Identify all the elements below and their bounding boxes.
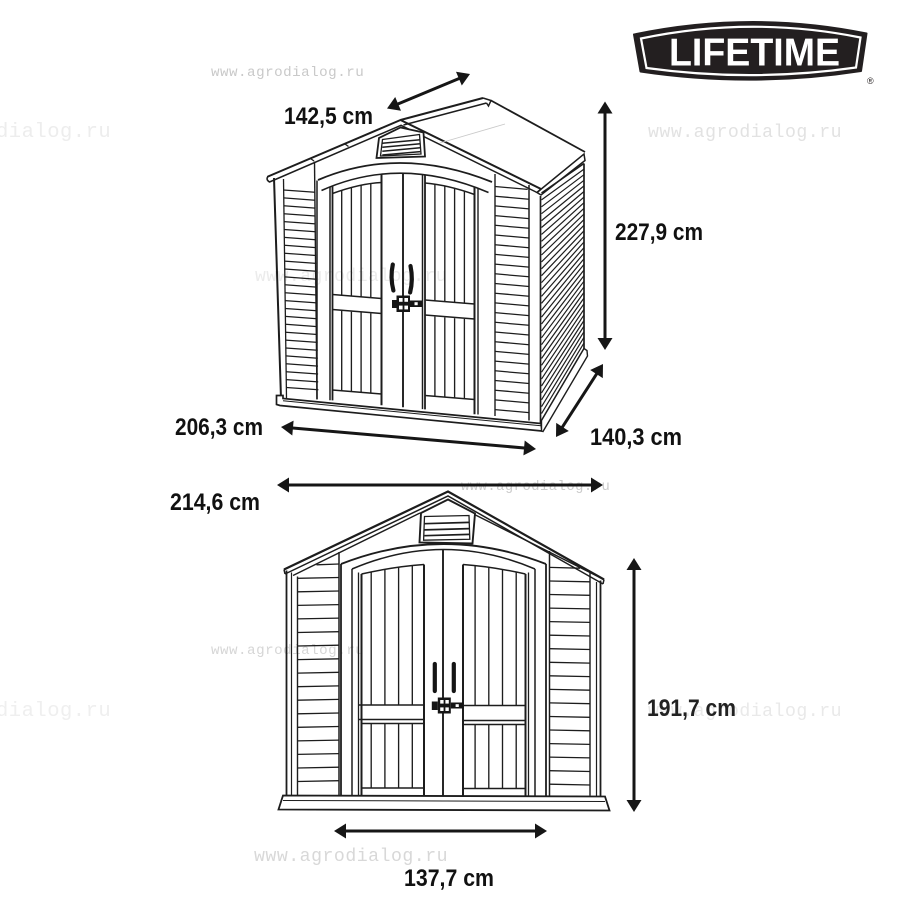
svg-text:142,5 cm: 142,5 cm: [284, 103, 373, 130]
svg-text:www.agrodialog.ru: www.agrodialog.ru: [461, 479, 610, 495]
svg-text:LIFETIME: LIFETIME: [669, 32, 840, 75]
svg-text:227,9 cm: 227,9 cm: [615, 219, 703, 246]
svg-text:191,7 cm: 191,7 cm: [647, 695, 736, 722]
svg-text:®: ®: [867, 76, 874, 86]
svg-text:www.agrodialog.ru: www.agrodialog.ru: [211, 65, 364, 81]
svg-text:137,7 cm: 137,7 cm: [404, 865, 494, 892]
svg-text:dialog.ru: dialog.ru: [0, 121, 111, 144]
svg-text:dialog.ru: dialog.ru: [0, 700, 111, 723]
svg-text:www.agrodialog.ru: www.agrodialog.ru: [648, 123, 842, 143]
svg-text:214,6 cm: 214,6 cm: [170, 489, 260, 516]
svg-text:140,3 cm: 140,3 cm: [590, 424, 682, 451]
svg-text:www.agrodialog.ru: www.agrodialog.ru: [254, 847, 448, 867]
svg-text:206,3 cm: 206,3 cm: [175, 414, 263, 441]
